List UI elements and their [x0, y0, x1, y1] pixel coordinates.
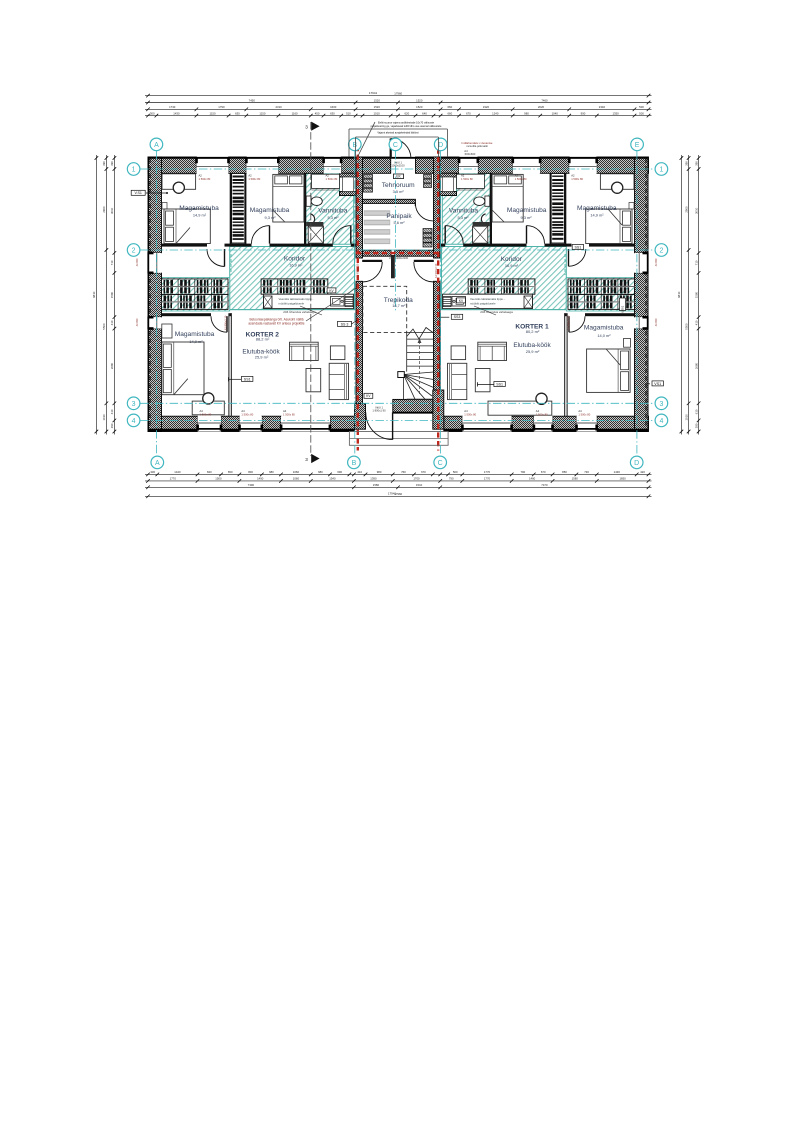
- svg-text:710: 710: [110, 260, 114, 265]
- svg-text:1580: 1580: [110, 291, 114, 298]
- svg-text:A1 900x2 10: A1 900x2 10: [566, 315, 570, 330]
- svg-text:Magamistuba: Magamistuba: [250, 207, 290, 214]
- svg-text:5500: 5500: [102, 323, 106, 330]
- svg-text:SS 3: SS 3: [341, 322, 349, 326]
- svg-text:1 500x 80: 1 500x 80: [283, 412, 295, 416]
- svg-text:V.S1: V.S1: [134, 191, 141, 195]
- svg-text:670: 670: [466, 111, 471, 115]
- svg-text:A4 900: A4 900: [655, 318, 658, 326]
- svg-text:Koridor: Koridor: [284, 255, 306, 262]
- svg-text:C: C: [393, 142, 398, 149]
- svg-text:450: 450: [315, 111, 320, 115]
- svg-text:1 500x 80: 1 500x 80: [464, 412, 476, 416]
- svg-text:B: B: [352, 142, 357, 149]
- svg-text:SS1: SS1: [244, 377, 251, 381]
- svg-text:A4 900: A4 900: [136, 318, 139, 326]
- svg-text:A4: A4: [200, 409, 204, 413]
- svg-text:1240: 1240: [492, 111, 499, 115]
- svg-text:3010: 3010: [694, 207, 698, 214]
- svg-text:1920: 1920: [483, 105, 490, 109]
- svg-text:7390: 7390: [248, 483, 255, 487]
- svg-text:1 500x 80: 1 500x 80: [326, 177, 338, 181]
- svg-text:25,9 m²: 25,9 m²: [255, 354, 269, 359]
- svg-text:Magamistuba: Magamistuba: [507, 207, 547, 214]
- svg-text:1790: 1790: [218, 105, 225, 109]
- svg-text:1540: 1540: [329, 477, 336, 481]
- svg-text:500: 500: [639, 105, 644, 109]
- svg-text:Vannituba: Vannituba: [449, 208, 479, 215]
- svg-text:US01: US01: [621, 305, 625, 312]
- svg-text:A4: A4: [283, 409, 287, 413]
- svg-text:1510: 1510: [416, 483, 423, 487]
- svg-text:4: 4: [659, 418, 663, 425]
- svg-text:1 800x1 90: 1 800x1 90: [372, 408, 386, 412]
- svg-text:500: 500: [639, 111, 644, 115]
- svg-text:660: 660: [447, 105, 452, 109]
- svg-text:Panipaik: Panipaik: [386, 213, 412, 220]
- svg-text:1 500x 80: 1 500x 80: [536, 412, 548, 416]
- svg-text:630: 630: [235, 111, 240, 115]
- svg-text:510: 510: [346, 111, 351, 115]
- svg-text:1010: 1010: [373, 111, 380, 115]
- svg-text:1150: 1150: [259, 111, 265, 115]
- svg-text:620: 620: [404, 111, 409, 115]
- svg-text:410: 410: [357, 470, 362, 474]
- svg-text:3: 3: [305, 457, 308, 462]
- svg-text:1: 1: [659, 167, 663, 174]
- svg-text:1580: 1580: [572, 477, 579, 481]
- svg-text:7460: 7460: [541, 98, 548, 102]
- svg-text:Koridor: Koridor: [501, 256, 523, 263]
- svg-text:1: 1: [132, 167, 136, 174]
- svg-text:1440: 1440: [174, 470, 181, 474]
- svg-text:D: D: [438, 142, 443, 149]
- svg-text:1770: 1770: [484, 477, 491, 481]
- svg-text:A2: A2: [571, 173, 575, 177]
- svg-text:Veemiks takistamaks tippu...: Veemiks takistamaks tippu...: [279, 297, 315, 301]
- svg-text:Vannituba: Vannituba: [318, 208, 348, 215]
- svg-text:14,9 m²: 14,9 m²: [193, 213, 207, 218]
- svg-text:1060: 1060: [293, 470, 300, 474]
- svg-text:410: 410: [110, 320, 114, 325]
- svg-text:2: 2: [659, 248, 663, 255]
- svg-text:1060: 1060: [293, 477, 300, 481]
- svg-text:300: 300: [150, 111, 155, 115]
- svg-text:1730: 1730: [169, 105, 176, 109]
- svg-text:9810: 9810: [92, 291, 96, 298]
- svg-text:1 500x 80: 1 500x 80: [461, 177, 473, 181]
- svg-text:A2: A2: [326, 173, 330, 177]
- svg-text:1 500x 80: 1 500x 80: [515, 177, 527, 181]
- svg-text:D: D: [634, 460, 639, 467]
- svg-text:630: 630: [330, 111, 335, 115]
- svg-text:1 500x 80: 1 500x 80: [571, 177, 583, 181]
- svg-text:1520: 1520: [374, 105, 381, 109]
- svg-text:1460: 1460: [529, 477, 536, 481]
- svg-text:1600: 1600: [330, 105, 337, 109]
- svg-text:A4: A4: [241, 409, 245, 413]
- svg-text:1 500x 80: 1 500x 80: [578, 412, 590, 416]
- svg-text:1160: 1160: [292, 111, 298, 115]
- svg-text:SS1: SS1: [575, 245, 582, 249]
- svg-text:3010: 3010: [110, 207, 114, 214]
- svg-text:2020: 2020: [538, 105, 545, 109]
- svg-text:1500: 1500: [215, 477, 222, 481]
- svg-text:790: 790: [520, 470, 525, 474]
- svg-text:mööblit paigaldusele: mööblit paigaldusele: [470, 302, 496, 306]
- svg-text:1 500x 80: 1 500x 80: [241, 412, 253, 416]
- svg-text:2900: 2900: [684, 206, 688, 213]
- svg-text:1 500x 80: 1 500x 80: [248, 177, 260, 181]
- svg-text:610: 610: [110, 409, 114, 414]
- svg-text:3: 3: [132, 401, 136, 408]
- svg-text:14,9 m²: 14,9 m²: [189, 339, 203, 344]
- svg-text:1580: 1580: [694, 291, 698, 298]
- svg-text:840: 840: [207, 470, 212, 474]
- svg-text:390: 390: [694, 161, 698, 166]
- svg-text:9810: 9810: [677, 291, 681, 298]
- svg-text:710: 710: [694, 260, 698, 265]
- svg-text:3: 3: [305, 125, 308, 130]
- svg-text:2310: 2310: [275, 105, 282, 109]
- svg-text:mcsoilla jellonaiki: mcsoilla jellonaiki: [466, 144, 488, 148]
- svg-text:17941: 17941: [388, 492, 397, 496]
- svg-text:390: 390: [102, 161, 106, 166]
- svg-text:420: 420: [640, 470, 645, 474]
- svg-text:730: 730: [584, 470, 589, 474]
- svg-text:VS1: VS1: [654, 382, 661, 386]
- svg-text:80,2 m²: 80,2 m²: [526, 329, 540, 334]
- svg-text:980: 980: [377, 470, 382, 474]
- svg-text:1 500x 80: 1 500x 80: [199, 177, 211, 181]
- svg-text:A4: A4: [578, 409, 582, 413]
- svg-text:SS1: SS1: [496, 382, 503, 386]
- svg-text:7470: 7470: [541, 483, 548, 487]
- svg-text:2680: 2680: [694, 362, 698, 369]
- svg-text:asendada vastavalt KV arteea p: asendada vastavalt KV arteea projektile: [248, 321, 304, 325]
- svg-text:640: 640: [422, 111, 427, 115]
- svg-text:390: 390: [694, 423, 698, 428]
- svg-text:1770: 1770: [484, 470, 491, 474]
- svg-text:7450: 7450: [249, 98, 256, 102]
- svg-text:A1 900x2 10: A1 900x2 10: [356, 263, 360, 278]
- svg-text:1000x2100: 1000x2100: [391, 164, 405, 168]
- svg-text:5500: 5500: [684, 323, 688, 330]
- svg-text:5,6 m²: 5,6 m²: [393, 220, 405, 225]
- svg-text:Magamistuba: Magamistuba: [584, 324, 624, 331]
- svg-text:1850: 1850: [619, 477, 626, 481]
- svg-text:9,3 m²: 9,3 m²: [520, 215, 532, 220]
- svg-text:A: A: [155, 460, 160, 467]
- svg-text:3,5 m²: 3,5 m²: [393, 189, 405, 194]
- svg-text:A2: A2: [248, 173, 252, 177]
- svg-text:410: 410: [694, 320, 698, 325]
- svg-text:610: 610: [694, 409, 698, 414]
- svg-text:16,9 m²: 16,9 m²: [289, 262, 303, 267]
- svg-text:A2: A2: [461, 173, 465, 177]
- svg-text:16,9 m²: 16,9 m²: [505, 263, 519, 268]
- svg-text:88,2 m²: 88,2 m²: [256, 336, 270, 341]
- svg-text:25,9 m²: 25,9 m²: [526, 349, 540, 354]
- svg-text:Magamistuba: Magamistuba: [179, 205, 219, 212]
- svg-text:Vajami aketsal avajaheledati l: Vajami aketsal avajaheledati läbilovi: [377, 131, 419, 135]
- svg-text:14,9 m²: 14,9 m²: [590, 213, 604, 218]
- svg-text:17941: 17941: [369, 91, 378, 95]
- svg-text:1350: 1350: [612, 111, 619, 115]
- svg-text:5,3 m²: 5,3 m²: [327, 215, 339, 220]
- svg-text:A1 900x2 10: A1 900x2 10: [434, 263, 438, 278]
- svg-text:390: 390: [684, 161, 688, 166]
- svg-text:660: 660: [447, 111, 452, 115]
- svg-text:A1 900x2 10: A1 900x2 10: [224, 315, 228, 330]
- svg-text:1520: 1520: [416, 98, 423, 102]
- svg-text:A2: A2: [199, 173, 203, 177]
- svg-text:650: 650: [228, 470, 233, 474]
- svg-text:A4: A4: [536, 409, 540, 413]
- svg-text:1040: 1040: [552, 111, 559, 115]
- svg-text:3: 3: [659, 401, 663, 408]
- svg-text:mööblit paigaldusele: mööblit paigaldusele: [279, 302, 305, 306]
- svg-text:Veemiks takistamaks tippu...: Veemiks takistamaks tippu...: [470, 297, 506, 301]
- svg-text:C: C: [438, 460, 443, 467]
- svg-text:690: 690: [337, 470, 342, 474]
- svg-text:EK: EK: [396, 175, 401, 179]
- svg-text:18,7 m²: 18,7 m²: [392, 303, 406, 308]
- svg-text:760: 760: [401, 470, 406, 474]
- svg-text:2340: 2340: [599, 105, 606, 109]
- svg-text:1390: 1390: [370, 477, 377, 481]
- svg-text:Magamistuba: Magamistuba: [175, 331, 215, 338]
- svg-text:E: E: [635, 142, 640, 149]
- svg-text:680: 680: [318, 470, 323, 474]
- svg-text:1430: 1430: [614, 470, 621, 474]
- svg-text:Magamistuba: Magamistuba: [577, 205, 617, 212]
- svg-text:A4 900: A4 900: [655, 258, 658, 266]
- svg-text:Tehnoruum: Tehnoruum: [382, 182, 415, 189]
- svg-text:A: A: [154, 142, 159, 149]
- svg-text:SS3: SS3: [454, 315, 461, 319]
- svg-text:600x600: 600x600: [465, 152, 476, 156]
- svg-text:1580: 1580: [373, 483, 380, 487]
- svg-text:9,3 m²: 9,3 m²: [264, 215, 276, 220]
- svg-text:VälU 1000x2100: VälU 1000x2100: [389, 256, 409, 260]
- svg-text:1700: 1700: [413, 477, 420, 481]
- svg-text:2900: 2900: [102, 206, 106, 213]
- svg-text:17960: 17960: [394, 91, 402, 95]
- svg-text:projekteering gu, vajaduseal t: projekteering gu, vajaduseal tul00 dho u…: [371, 124, 442, 128]
- svg-text:500: 500: [453, 470, 458, 474]
- svg-text:850: 850: [562, 470, 567, 474]
- svg-text:330: 330: [150, 470, 155, 474]
- svg-text:680: 680: [269, 470, 274, 474]
- svg-text:670: 670: [541, 470, 546, 474]
- svg-text:2680: 2680: [110, 362, 114, 369]
- svg-text:1430: 1430: [173, 111, 180, 115]
- svg-text:390: 390: [110, 423, 114, 428]
- svg-text:A4: A4: [464, 409, 468, 413]
- svg-text:1770: 1770: [170, 477, 177, 481]
- svg-text:800: 800: [248, 470, 253, 474]
- svg-text:1010: 1010: [684, 414, 688, 421]
- svg-text:980: 980: [524, 111, 529, 115]
- svg-text:Eelki suurus vajena ardiklesis: Eelki suurus vajena ardiklesisale 10x70 …: [378, 120, 435, 124]
- svg-text:1010: 1010: [102, 414, 106, 421]
- svg-text:1520: 1520: [416, 105, 423, 109]
- svg-text:390: 390: [110, 161, 114, 166]
- svg-text:990: 990: [581, 111, 586, 115]
- svg-text:1 500x 80: 1 500x 80: [200, 412, 212, 416]
- svg-text:4: 4: [132, 418, 136, 425]
- svg-text:1150: 1150: [209, 111, 215, 115]
- svg-text:670: 670: [421, 470, 426, 474]
- svg-text:B: B: [352, 460, 357, 467]
- svg-text:1520: 1520: [374, 98, 381, 102]
- svg-text:1490: 1490: [257, 477, 264, 481]
- svg-text:A4 900: A4 900: [136, 258, 139, 266]
- svg-text:790: 790: [449, 477, 454, 481]
- svg-text:5,3 m²: 5,3 m²: [457, 215, 469, 220]
- svg-text:A2: A2: [515, 173, 519, 177]
- svg-text:14,0 m²: 14,0 m²: [597, 333, 611, 338]
- svg-text:2: 2: [132, 248, 136, 255]
